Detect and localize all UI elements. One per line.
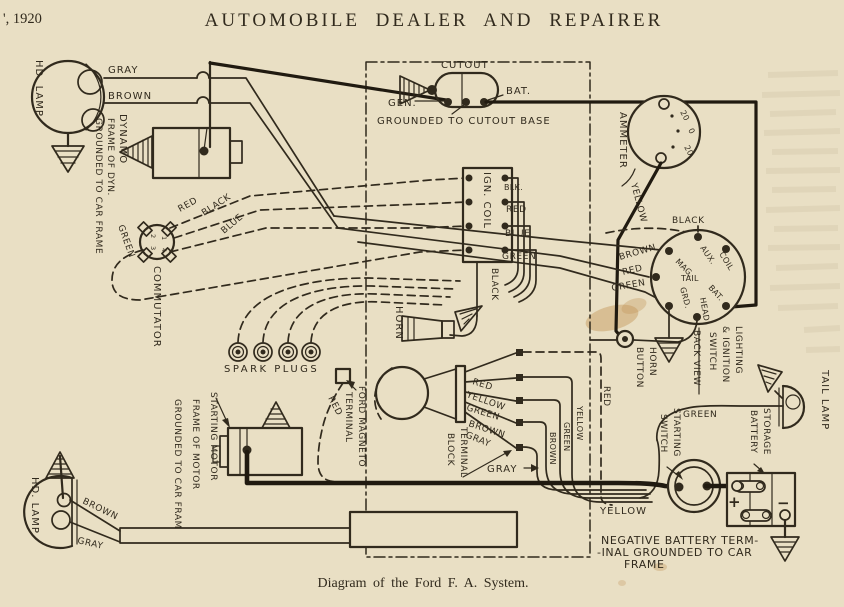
label-yellow-v: YELLOW <box>575 405 584 441</box>
label-storage-battery-l1: STORAGE <box>761 408 771 455</box>
label-minus: − <box>777 494 790 512</box>
label-dynamo-grounded: GROUNDED TO CAR FRAME <box>93 118 103 254</box>
label-green-v: GREEN <box>562 422 571 451</box>
label-dynamo: DYNAMO <box>117 114 128 164</box>
label-switch-l4: BACK VIEW <box>691 330 701 386</box>
label-hd-lamp-top: HD. LAMP <box>33 60 44 117</box>
label-starting-switch-l1: STARTING <box>671 408 681 457</box>
label-comm-4: 4 <box>160 248 168 252</box>
label-ign-coil: IGN. COIL <box>481 172 492 229</box>
page-title: AUTOMOBILE DEALER AND REPAIRER <box>205 10 664 31</box>
floor-board <box>350 512 517 547</box>
label-comm-2: 2 <box>149 234 157 238</box>
label-neg-l3: FRAME <box>624 558 665 571</box>
label-yellow-bottom: YELLOW <box>599 506 647 517</box>
label-ford-magneto-l1: FORD MAGNETO <box>356 386 366 467</box>
label-neg-l2: -INAL GROUNDED TO CAR <box>597 546 752 559</box>
label-tail-lamp: TAIL LAMP <box>819 369 830 430</box>
label-comm-1: 1 <box>160 236 168 240</box>
label-brown-top: BROWN <box>108 91 152 102</box>
label-terminal-block-l1: TERMINAL <box>458 426 468 478</box>
label-cutout: CUTOUT <box>441 60 489 71</box>
label-red-coil: RED <box>506 205 527 215</box>
label-starting-motor-l3: GROUNDED TO CAR FRAME <box>172 399 182 535</box>
label-black-coil-down: BLACK <box>489 268 499 301</box>
label-dynamo-frame: FRAME OF DYN. <box>105 118 115 196</box>
label-gray-top: GRAY <box>108 65 138 76</box>
label-starting-motor-l2: FRAME OF MOTOR <box>190 399 200 490</box>
label-commutator: COMMUTATOR <box>151 266 162 348</box>
label-spark-plugs: SPARK PLUGS <box>224 364 319 375</box>
frame-rail <box>120 528 350 543</box>
label-horn: HORN <box>393 306 404 340</box>
label-sw-tail: TAIL <box>680 274 699 283</box>
label-starting-motor-l1: STARTING MOTOR <box>208 392 218 481</box>
label-switch-l3: SWITCH <box>707 332 717 371</box>
label-gen-cutout: GEN. <box>388 98 417 109</box>
label-plus: + <box>728 493 741 511</box>
label-black-switch: BLACK <box>672 216 705 226</box>
label-storage-battery-l2: BATTERY <box>748 410 758 454</box>
label-horn-button-l1: HORN <box>647 347 657 376</box>
label-green-tail: GREEN <box>683 410 717 420</box>
label-bat-cutout: BAT. <box>506 86 531 97</box>
wiring-diagram-canvas: ', 1920 AUTOMOBILE DEALER AND REPAIRER H… <box>0 0 844 607</box>
label-brown-v: BROWN <box>548 432 557 465</box>
header-page-date: ', 1920 <box>3 11 42 27</box>
scanned-book-page: ', 1920 AUTOMOBILE DEALER AND REPAIRER H… <box>0 0 844 607</box>
label-ford-magneto-l2: TERMINAL <box>343 391 353 443</box>
label-hd-lamp-bottom: HD. LAMP <box>29 477 40 534</box>
label-gray-pointer: GRAY <box>487 464 517 475</box>
figure-caption: Diagram of the Ford F. A. System. <box>318 576 529 591</box>
label-comm-3: 3 <box>149 246 157 250</box>
label-grounded-cutout: GROUNDED TO CUTOUT BASE <box>377 116 551 127</box>
label-switch-l2: & IGNITION <box>720 326 730 383</box>
label-ammeter: AMMETER <box>617 112 628 169</box>
label-horn-button-l2: BUTTON <box>634 347 644 388</box>
label-switch-l1: LIGHTING <box>733 326 743 374</box>
label-red-v: RED <box>601 386 611 407</box>
label-blk-coil: BLK. <box>504 183 523 192</box>
label-terminal-block-l2: BLOCK <box>445 433 455 467</box>
